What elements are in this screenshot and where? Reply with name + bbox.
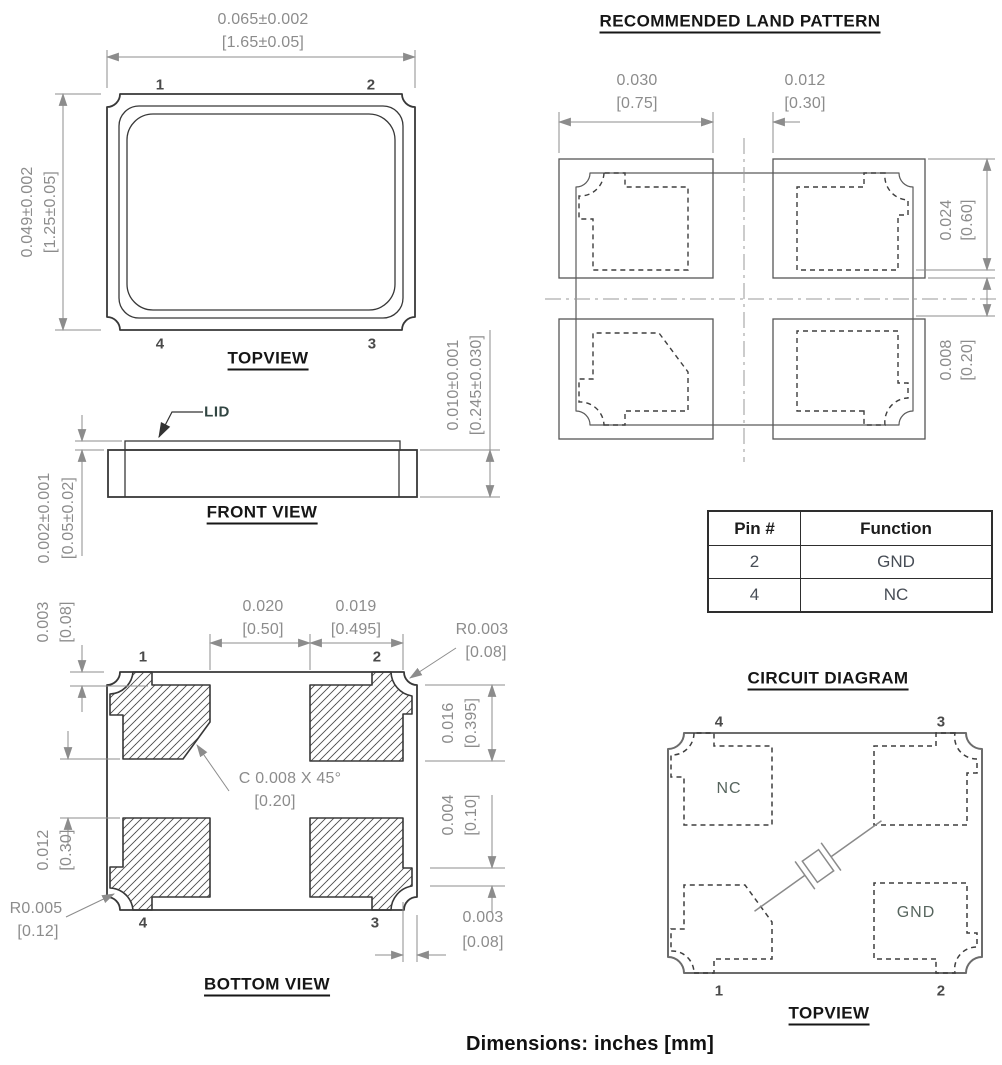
circuit-pad-2	[874, 883, 977, 973]
pin-table-header-pin: Pin #	[709, 512, 800, 545]
pad-outline-bottom-left	[579, 333, 688, 425]
landpattern-offset-dim-mm: [0.20]	[960, 339, 976, 380]
circuit-pin-3-label: 3	[937, 715, 946, 730]
topview-width-dim-mm: [1.65±0.05]	[222, 35, 304, 51]
pad-outline-bottom-right	[797, 331, 908, 425]
topview-width-dim-inches: 0.065±0.002	[217, 12, 308, 28]
land-pattern-drawing	[545, 112, 998, 462]
bottomview-edge-dim-mm: [0.08]	[462, 935, 503, 951]
pad-outline-top-left	[579, 173, 688, 270]
bottomview-corner-radius-dim-mm: [0.08]	[465, 645, 506, 661]
pad-2-hatched	[310, 672, 412, 761]
bottomview-edge-dim-inches: 0.003	[462, 910, 503, 926]
circuit-pin-2-label: 2	[937, 984, 946, 999]
circuit-pad-4	[671, 733, 772, 825]
bottomview-pin-4: 4	[139, 916, 148, 931]
bottomview-corner-radius-dim-inches: R0.003	[456, 622, 509, 638]
topview-height-dim-inches: 0.049±0.002	[20, 166, 36, 257]
circuit-pin-1-label: 1	[715, 984, 724, 999]
lid-label: LID	[204, 405, 230, 420]
topview-pin-4: 4	[156, 337, 165, 352]
bottomview-chamfer-note-mm: [0.20]	[254, 794, 295, 810]
pin-table-row-pin: 2	[709, 545, 800, 578]
frontview-lid-dim-mm: [0.05±0.02]	[61, 477, 77, 559]
top-view-drawing	[55, 50, 415, 330]
landpattern-gap-dim-inches: 0.012	[784, 73, 825, 89]
frontview-height-dim-inches: 0.010±0.001	[446, 339, 462, 430]
land-top-right	[773, 159, 925, 278]
circuit-nc-label: NC	[716, 781, 741, 797]
bottomview-row-gap-dim-inches: 0.012	[36, 829, 52, 870]
circuit-topview-subtitle: TOPVIEW	[789, 1005, 870, 1026]
landpattern-pad-width-dim-inches: 0.030	[616, 73, 657, 89]
land-bottom-right	[773, 319, 925, 439]
bottomview-castellation-radius-mm: [0.12]	[17, 924, 58, 940]
circuit-diagram-title: CIRCUIT DIAGRAM	[748, 670, 909, 691]
circuit-pad-3	[874, 733, 977, 825]
bottomview-pin-1: 1	[139, 650, 148, 665]
bottomview-chamfer-note-inches: C 0.008 X 45°	[239, 771, 341, 787]
circuit-pad-1	[671, 885, 772, 973]
landpattern-gap-dim-mm: [0.30]	[784, 96, 825, 112]
landpattern-pad-height-dim-mm: [0.60]	[960, 199, 976, 240]
topview-pin-2: 2	[367, 78, 376, 93]
pin-table-header-function: Function	[800, 512, 991, 545]
frontview-title: FRONT VIEW	[207, 504, 318, 525]
bottomview-castellation-radius-inches: R0.005	[10, 901, 63, 917]
bottomview-pad-gap-dim-mm: [0.50]	[242, 622, 283, 638]
pad-outline-top-right	[797, 173, 908, 270]
pin-function-table: Pin # Function 2 GND 4 NC	[707, 510, 993, 613]
landpattern-pad-height-dim-inches: 0.024	[939, 199, 955, 240]
bottomview-row-gap-dim-mm: [0.30]	[59, 829, 75, 870]
datasheet-drawing-page: 0.065±0.002 [1.65±0.05] 0.049±0.002 [1.2…	[0, 0, 1002, 1065]
bottomview-pad-width-dim-mm: [0.495]	[331, 622, 381, 638]
bottomview-wrap-dim-mm: [0.10]	[464, 794, 480, 835]
bottomview-top-inset-dim-mm: [0.08]	[59, 601, 75, 642]
topview-pin-1: 1	[156, 78, 165, 93]
pin-table-row-function: NC	[800, 578, 991, 611]
pad-4-hatched	[110, 818, 210, 910]
pin-table-row-function: GND	[800, 545, 991, 578]
bottomview-wrap-dim-inches: 0.004	[441, 794, 457, 835]
lid-leader-line	[159, 412, 203, 437]
bottomview-pad-width-dim-inches: 0.019	[335, 599, 376, 615]
bottomview-title: BOTTOM VIEW	[204, 976, 330, 997]
landpattern-offset-dim-inches: 0.008	[939, 339, 955, 380]
bottomview-pin-3: 3	[371, 916, 380, 931]
bottomview-pad-height-dim-inches: 0.016	[441, 702, 457, 743]
land-pattern-title: RECOMMENDED LAND PATTERN	[600, 13, 881, 34]
landpattern-pad-width-dim-mm: [0.75]	[616, 96, 657, 112]
bottomview-top-inset-dim-inches: 0.003	[36, 601, 52, 642]
dimensions-units-note: Dimensions: inches [mm]	[466, 1034, 714, 1054]
bottomview-pad-height-dim-mm: [0.395]	[464, 698, 480, 748]
circuit-gnd-label: GND	[897, 905, 936, 921]
circuit-diagram-drawing	[668, 733, 982, 973]
topview-pin-3: 3	[368, 337, 377, 352]
frontview-lid-dim-inches: 0.002±0.001	[37, 472, 53, 563]
bottomview-pad-gap-dim-inches: 0.020	[242, 599, 283, 615]
pin-table-row-pin: 4	[709, 578, 800, 611]
topview-title: TOPVIEW	[228, 350, 309, 371]
pad-3-hatched	[310, 818, 412, 910]
frontview-height-dim-mm: [0.245±0.030]	[469, 335, 485, 435]
topview-height-dim-mm: [1.25±0.05]	[43, 171, 59, 253]
circuit-pin-4-label: 4	[715, 715, 724, 730]
bottomview-pin-2: 2	[373, 650, 382, 665]
pad-1-hatched	[110, 672, 210, 759]
